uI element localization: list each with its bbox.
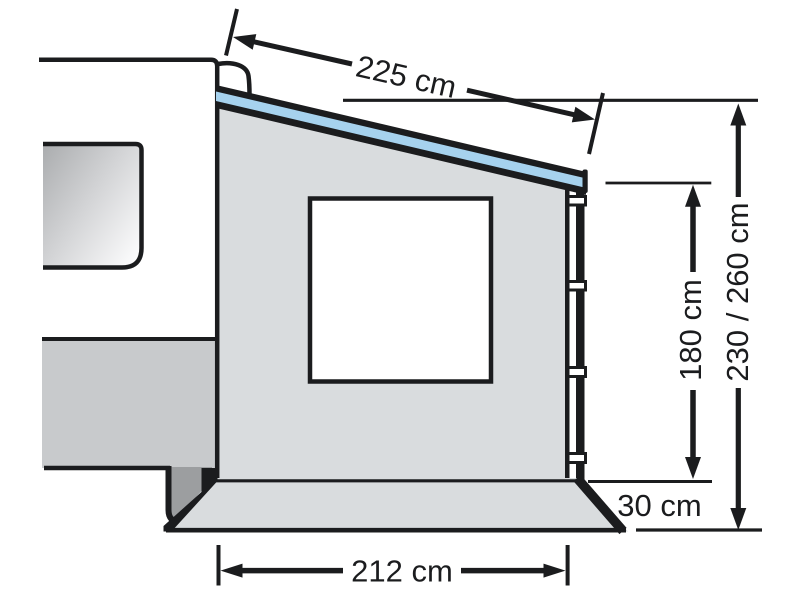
- svg-text:212 cm: 212 cm: [351, 554, 453, 589]
- svg-text:30 cm: 30 cm: [617, 488, 701, 523]
- svg-text:225 cm: 225 cm: [353, 48, 460, 105]
- svg-text:230 / 260 cm: 230 / 260 cm: [720, 202, 755, 381]
- svg-text:180 cm: 180 cm: [673, 279, 708, 381]
